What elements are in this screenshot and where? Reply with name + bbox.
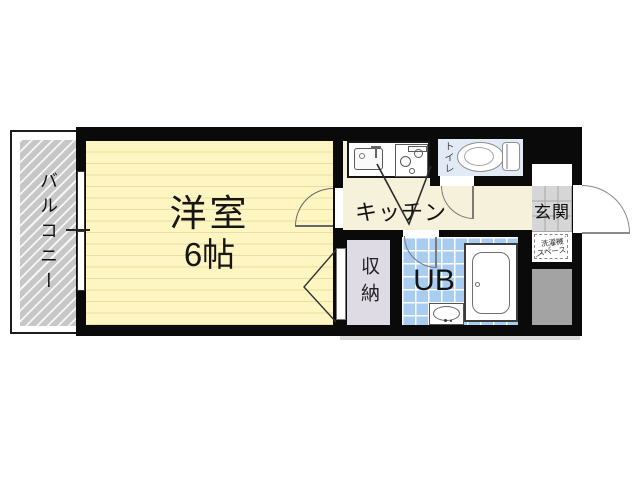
- western-room-size-label: 6帖: [86, 228, 333, 276]
- floor-plan: バルコニー 洋室 6帖 キッチン トイレ 玄関: [0, 0, 640, 480]
- entrance-door-leaf: [582, 232, 630, 234]
- toilet-tank-line: [506, 144, 508, 169]
- balcony-label: バルコニー: [35, 171, 61, 296]
- storage-fold-door-mark: [302, 248, 338, 324]
- stove-burner-icon: [414, 149, 423, 158]
- window-center-tick: [66, 229, 90, 231]
- pipe-shaft: [532, 269, 572, 325]
- toilet-bowl-inner-icon: [464, 147, 494, 166]
- kitchen-fold-door-mark: [375, 160, 433, 226]
- toilet-door-opening: [440, 176, 474, 186]
- window-pane: [77, 171, 85, 230]
- toilet-tank-icon: [502, 142, 520, 171]
- room-toilet: トイレ: [438, 139, 523, 176]
- bath-sink-icon: [429, 303, 464, 325]
- room-entrance: 玄関: [532, 186, 572, 232]
- sink-drain-icon: [359, 153, 365, 159]
- bath-sink-tap-icon: [450, 320, 452, 322]
- bath-door-leaf: [435, 237, 437, 268]
- room-storage: 収納: [347, 240, 390, 325]
- room-door-leaf: [295, 225, 333, 227]
- entrance-label: 玄関: [532, 198, 572, 223]
- plan-shadow: [340, 336, 580, 340]
- bathtub-icon: [464, 243, 518, 322]
- washer-space-label-line2: スペース: [537, 245, 567, 257]
- entrance-alcove: [532, 164, 572, 186]
- toilet-label: トイレ: [440, 141, 455, 174]
- room-balcony: バルコニー: [20, 140, 76, 326]
- toilet-door-leaf: [472, 186, 474, 219]
- entrance-door-arc: [582, 185, 630, 233]
- faucet-spout-icon: [371, 146, 381, 148]
- storage-label: 収納: [355, 256, 382, 310]
- entrance-door-opening: [573, 185, 582, 233]
- bath-sink-drain-icon: [444, 319, 447, 322]
- window-pane: [77, 231, 85, 291]
- bathtub-drain-icon: [475, 282, 480, 287]
- room-door-opening: [335, 188, 343, 228]
- washer-space: 洗濯機 スペース: [532, 232, 572, 262]
- unit-bath-label: UB: [406, 264, 462, 298]
